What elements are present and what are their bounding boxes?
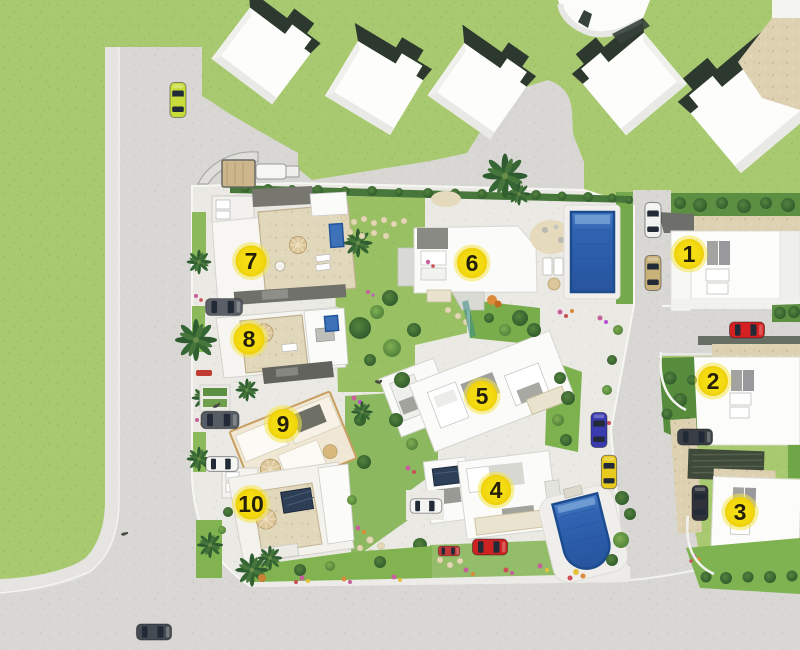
svg-text:5: 5 xyxy=(476,383,489,409)
svg-text:3: 3 xyxy=(734,499,747,525)
svg-text:4: 4 xyxy=(490,477,503,503)
svg-text:6: 6 xyxy=(466,250,479,276)
svg-text:2: 2 xyxy=(707,368,720,394)
svg-text:1: 1 xyxy=(683,241,696,267)
svg-text:7: 7 xyxy=(245,248,258,274)
svg-text:8: 8 xyxy=(243,326,256,352)
svg-text:10: 10 xyxy=(238,491,264,517)
svg-text:9: 9 xyxy=(277,411,290,437)
